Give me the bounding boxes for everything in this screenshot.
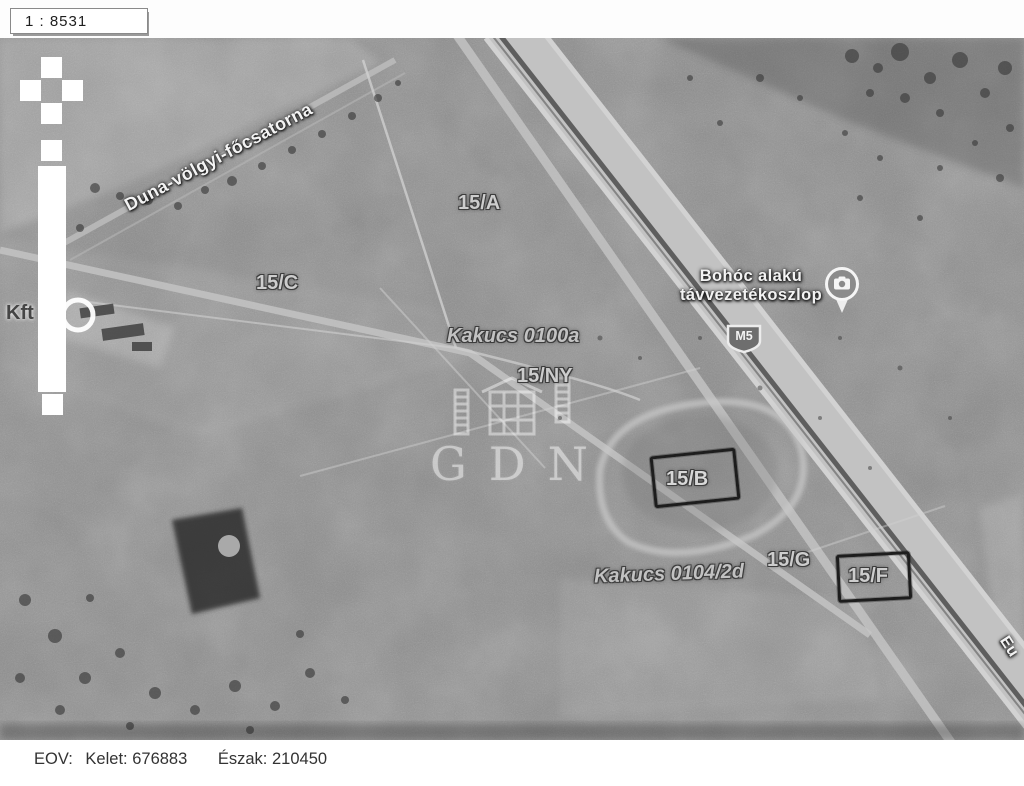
company-label: Kft bbox=[6, 302, 34, 325]
scale-indicator: 1 : 8531 bbox=[10, 8, 148, 34]
east-value: 676883 bbox=[132, 750, 187, 768]
north-value: 210450 bbox=[272, 750, 327, 768]
white-mask-square bbox=[41, 57, 62, 78]
parcel-label-kakucs-0100a: Kakucs 0100a bbox=[447, 325, 579, 348]
poi-photo-label: Bohóc alakú távvezetékoszlop bbox=[676, 267, 826, 305]
footer: EOV: Kelet: 676883 Észak: 210450 bbox=[0, 740, 1024, 786]
scale-value: 1 : 8531 bbox=[25, 13, 87, 30]
white-mask-square bbox=[62, 80, 83, 101]
bottom-dark-strip bbox=[0, 724, 1024, 740]
map-canvas[interactable]: Duna-völgyi-főcsatorna 15/A 15/C Kakucs … bbox=[0, 38, 1024, 740]
parcel-label-15g: 15/G bbox=[767, 549, 810, 572]
poi-photo-label-line2: távvezetékoszlop bbox=[676, 286, 826, 305]
white-mask-bar bbox=[38, 166, 66, 392]
parcel-label-15ny: 15/NY bbox=[517, 365, 573, 388]
eov-coordinates: EOV: Kelet: 676883 Észak: 210450 bbox=[34, 750, 327, 769]
camera-photo-pin-icon[interactable] bbox=[822, 266, 862, 316]
white-mask-square bbox=[20, 80, 41, 101]
poi-photo-label-line1: Bohóc alakú bbox=[676, 267, 826, 286]
white-mask-square bbox=[41, 140, 62, 161]
gdn-watermark-text: GDN bbox=[430, 437, 610, 491]
eov-label: EOV: bbox=[34, 750, 73, 768]
white-mask-square bbox=[42, 394, 63, 415]
m5-shield-text: M5 bbox=[735, 329, 752, 343]
east-label: Kelet: bbox=[85, 750, 127, 768]
m5-road-shield: M5 bbox=[724, 324, 764, 354]
page: 1 : 8531 bbox=[0, 0, 1024, 786]
drawn-box-15b bbox=[650, 448, 741, 509]
parcel-label-15a: 15/A bbox=[458, 192, 500, 215]
gdn-watermark: GDN bbox=[428, 376, 610, 491]
drawn-box-15f bbox=[836, 551, 912, 603]
white-mask-square bbox=[41, 103, 62, 124]
north-label: Észak: bbox=[218, 750, 268, 768]
parcel-label-15c: 15/C bbox=[256, 272, 298, 295]
